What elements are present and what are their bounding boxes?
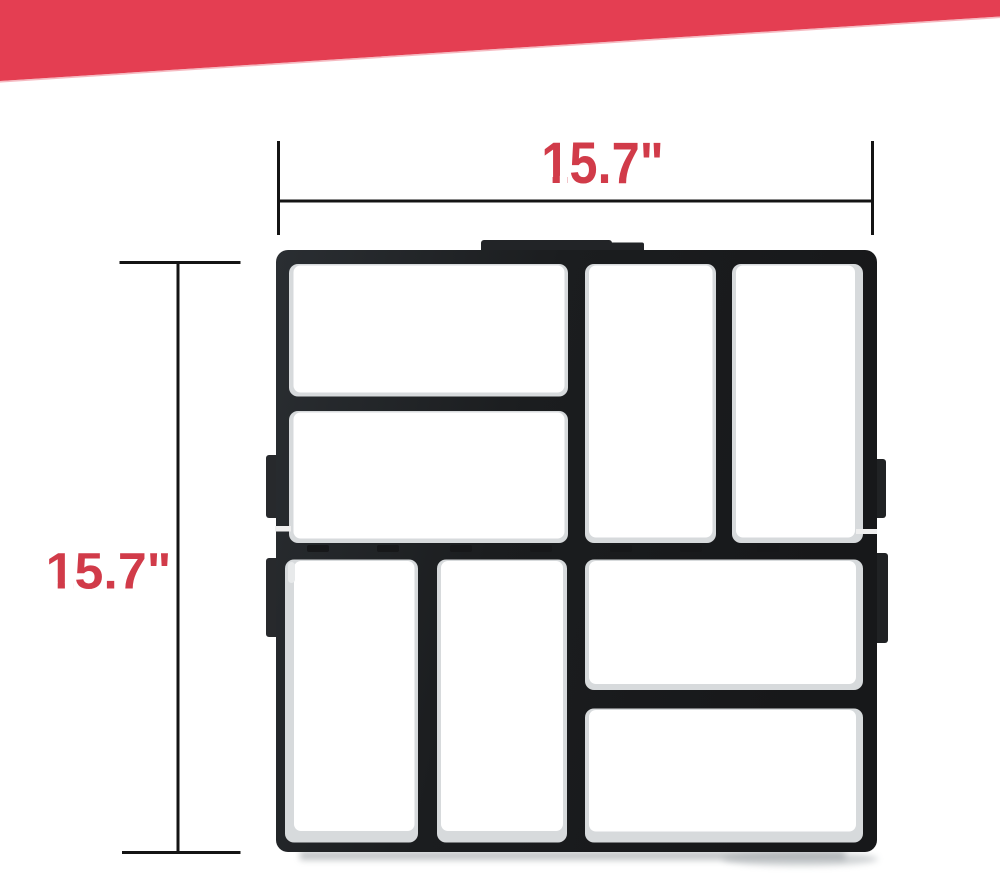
svg-text:15.7": 15.7" — [46, 542, 172, 599]
svg-text:15.7": 15.7" — [541, 131, 663, 196]
